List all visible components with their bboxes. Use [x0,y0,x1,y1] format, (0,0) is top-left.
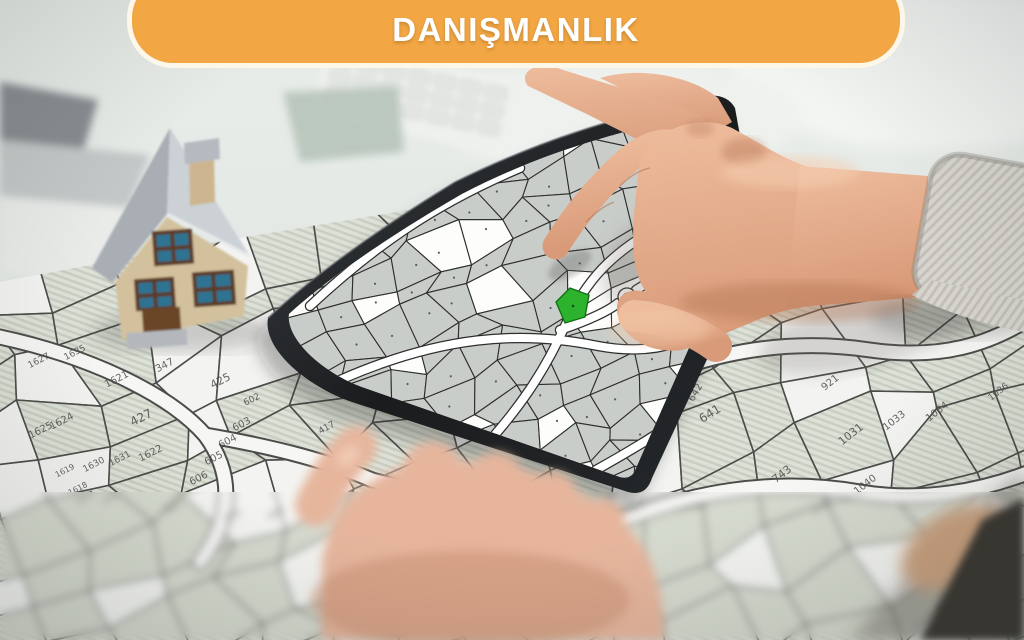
vignette [0,0,1024,640]
banner-label: DANIŞMANLIK [392,11,639,49]
scene-canvas: 1625162442716271635162134742560260360460… [0,0,1024,640]
photo-scene: 1625162442716271635162134742560260360460… [0,0,1024,640]
consultancy-banner: DANIŞMANLIK [127,0,905,68]
